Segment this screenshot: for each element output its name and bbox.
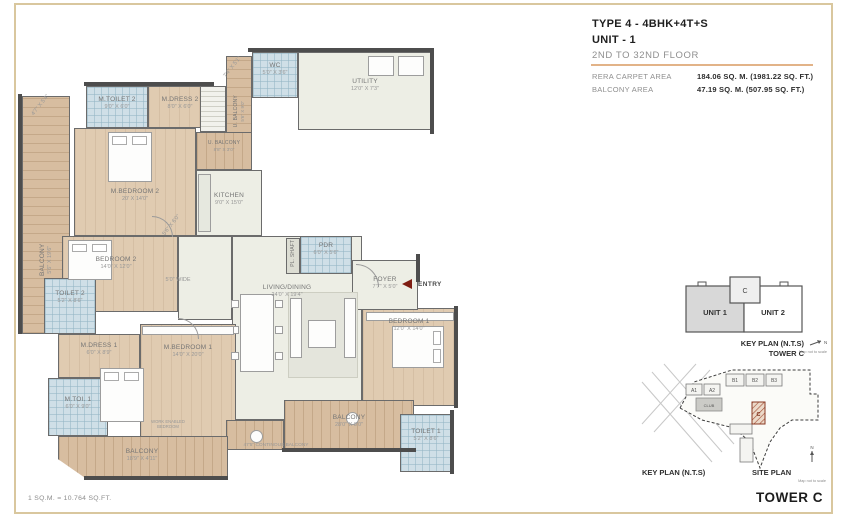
bed — [100, 368, 144, 422]
pillow — [92, 244, 107, 252]
pillow — [112, 136, 127, 145]
chair — [231, 300, 239, 308]
site-structure — [730, 424, 752, 434]
site-label-b1: B1 — [732, 378, 738, 384]
site-plan: A1 A2 B1 B2 B3 CLUB C KEY PLAN (N.T.S) S… — [640, 362, 830, 488]
label-balcony-bottom-right: BALCONY 28'0" X 8'0" — [284, 414, 414, 430]
floor-range: 2ND TO 32ND FLOOR — [592, 50, 699, 61]
north-arrow-head-icon — [810, 451, 814, 455]
label-u-balcony-horizontal: U. BALCONY 8'8" X 3'0" — [196, 140, 252, 152]
key-plan-scale-note: Map not to scale — [799, 350, 827, 354]
wall-segment — [84, 476, 228, 480]
key-plan-unit2-label: UNIT 2 — [761, 308, 785, 317]
site-label-b2: B2 — [752, 378, 758, 384]
balcony-table — [250, 430, 263, 443]
site-caption-key-plan: KEY PLAN (N.T.S) — [642, 468, 706, 477]
label-m-dress-2: M.DRESS 2 8'0" X 6'0" — [148, 96, 212, 112]
label-entry: ENTRY — [418, 281, 442, 288]
sofa — [290, 298, 302, 358]
label-m-toilet-2: M.TOILET 2 9'0" X 6'0" — [86, 96, 148, 112]
key-plan-unit1-label: UNIT 1 — [703, 308, 727, 317]
dryer — [398, 56, 424, 76]
bed — [108, 132, 152, 182]
label-bedroom-1: BEDROOM 1 12'0" X 14'0" — [364, 318, 454, 334]
wall-segment — [454, 306, 458, 408]
site-label-a1: A1 — [691, 388, 697, 394]
wall-segment — [18, 94, 22, 334]
chair — [275, 326, 283, 334]
label-continuous-balcony: 47'5" CONTINOUS BALCONY — [220, 443, 332, 449]
label-living-dining: LIVING/DINING 24'0" X 19'4" — [232, 284, 342, 300]
site-label-c: C — [757, 412, 761, 418]
pillow — [124, 372, 139, 381]
sofa — [344, 298, 356, 358]
pillow — [433, 349, 441, 363]
site-label-a2: A2 — [709, 388, 715, 394]
washer — [368, 56, 394, 76]
entry-arrow-icon — [402, 279, 412, 289]
label-toilet-2: TOILET 2 5'2" X 8'6" — [44, 290, 96, 306]
rera-carpet-area-value: 184.06 SQ. M. (1981.22 SQ. FT.) — [697, 72, 813, 81]
unit-title: UNIT - 1 — [592, 34, 636, 46]
floorplan-page: BALCONY 5'6" X 19'6" 4'7" X 5'4" M.TOILE… — [0, 0, 856, 521]
chair — [275, 300, 283, 308]
label-m-toi-1: M.TOI. 1 6'0" X 9'0" — [48, 396, 108, 412]
tower-name: TOWER C — [695, 490, 823, 505]
label-u-balcony-vertical: U. BALCONY 5'6" X 9'0" — [233, 76, 245, 146]
label-kitchen: KITCHEN 9'0" X 15'0" — [196, 192, 262, 208]
key-plan-caption: KEY PLAN (N.T.S) — [741, 339, 805, 348]
label-balcony-bottom-left: BALCONY 18'9" X 4'11" — [58, 448, 226, 464]
label-m-bedroom-2: M.BEDROOM 2 20' X 14'0" — [90, 188, 180, 204]
header-divider — [591, 64, 813, 66]
label-balcony-left: BALCONY 5'6" X 19'6" — [39, 225, 55, 295]
label-utility: UTILITY 12'0" X 7'3" — [298, 78, 432, 94]
pillow — [104, 372, 119, 381]
site-scale-note: Map not to scale — [798, 479, 826, 483]
rera-carpet-area-label: RERA CARPET AREA — [592, 72, 672, 81]
balcony-area-value: 47.19 SQ. M. (507.95 SQ. FT.) — [697, 85, 805, 94]
dining-table — [240, 294, 274, 372]
site-caption-site-plan: SITE PLAN — [752, 468, 791, 477]
label-wc: WC 5'0" X 3'6" — [252, 62, 298, 78]
label-work-enabled-note: WORK ENABLED BEDROOM — [146, 419, 190, 430]
site-label-club: CLUB — [704, 403, 715, 408]
pillow — [72, 244, 87, 252]
key-plan-north-label: N — [824, 340, 827, 345]
plan-type-title: TYPE 4 - 4BHK+4T+S — [592, 18, 708, 30]
wall-segment — [84, 82, 214, 86]
label-m-dress-1: M.DRESS 1 6'0" X 8'9" — [58, 342, 140, 358]
conversion-note: 1 SQ.M. = 10.764 SQ.FT. — [28, 495, 111, 502]
label-toilet-1: TOILET 1 5'2" X 8'6" — [398, 428, 454, 444]
coffee-table — [308, 320, 336, 348]
label-m-bedroom-1: M.BEDROOM 1 14'0" X 20'0" — [140, 344, 236, 360]
label-bedroom-2: BEDROOM 2 14'0" X 12'0" — [66, 256, 166, 272]
label-passage-width: 5'0" WIDE — [156, 277, 200, 284]
pillow — [132, 136, 147, 145]
chair — [275, 352, 283, 360]
site-label-b3: B3 — [771, 378, 777, 384]
wall-segment — [248, 48, 434, 52]
key-plan: C UNIT 1 UNIT 2 KEY PLAN (N.T.S) TOWER C… — [678, 272, 828, 364]
site-structure — [740, 438, 753, 462]
label-pl-shaft: PL. SHAFT — [290, 235, 297, 271]
site-north-label: N — [810, 445, 813, 450]
label-pdr: PDR 6'0" X 5'6" — [300, 242, 352, 258]
key-plan-core-label: C — [742, 288, 747, 295]
balcony-area-label: BALCONY AREA — [592, 85, 653, 94]
